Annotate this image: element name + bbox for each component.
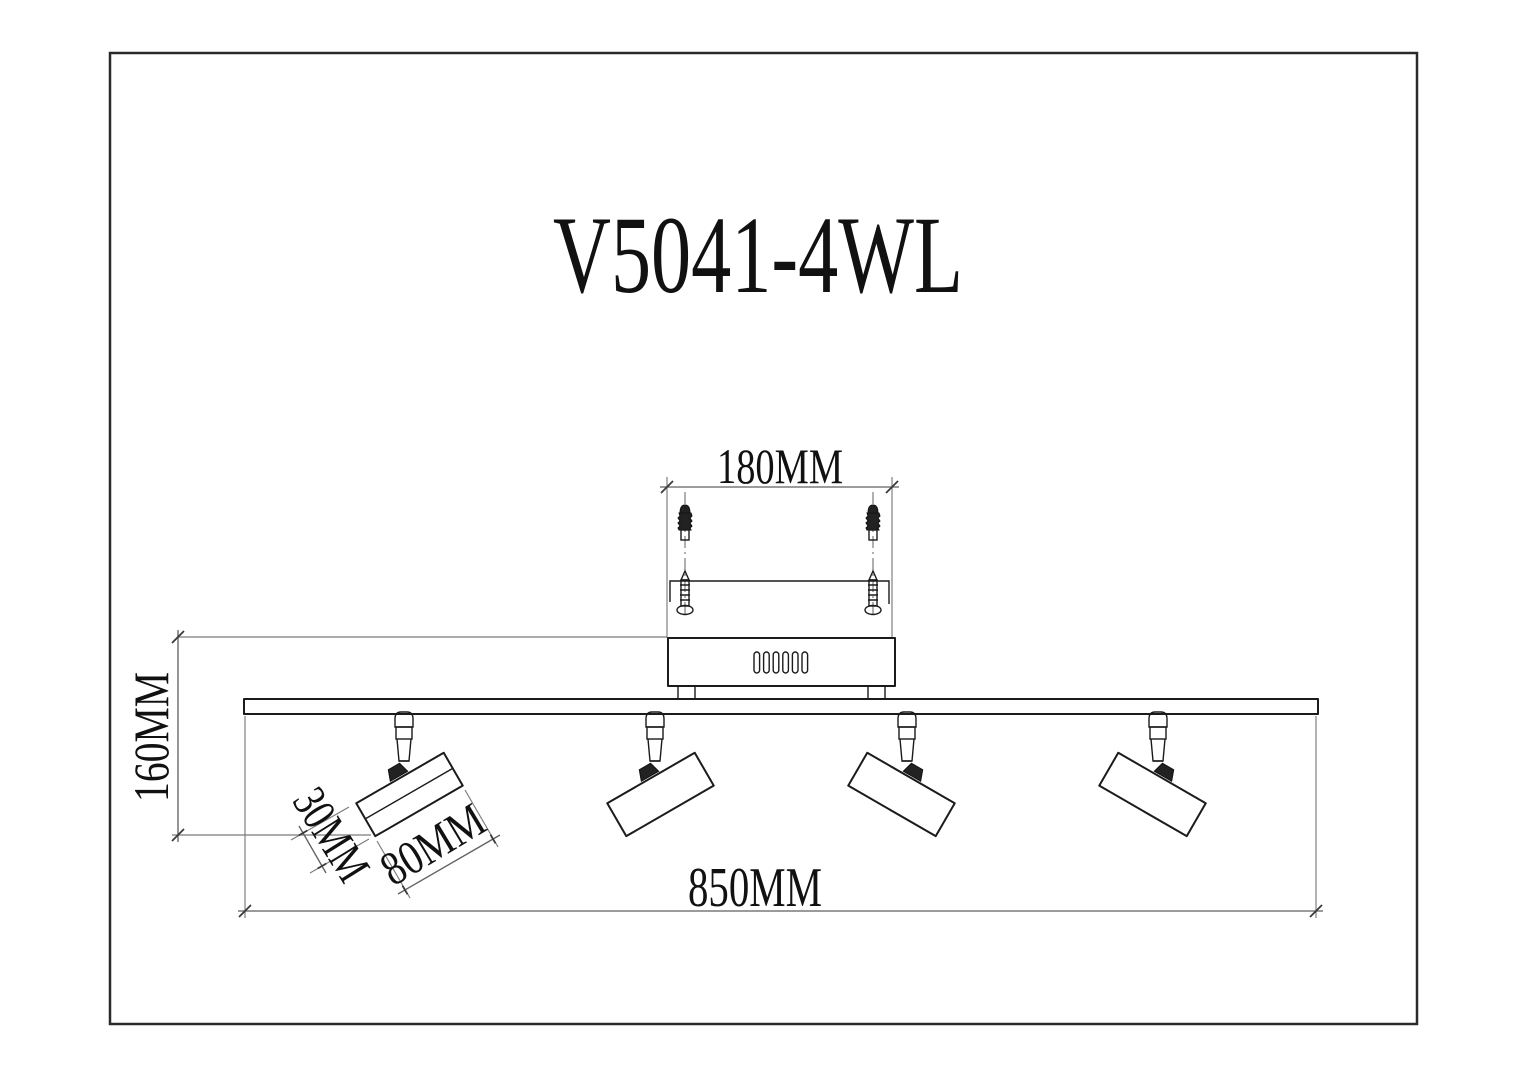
spotlight-head [607, 753, 713, 836]
dim-label-bar-length: 850MM [688, 857, 822, 919]
spotlight-joint [636, 762, 659, 782]
spotlight-head [848, 753, 954, 836]
spotlight-4 [1099, 712, 1212, 836]
mounting-bracket [670, 581, 889, 604]
wall-anchor-left [678, 505, 692, 540]
spotlight-joint [1154, 762, 1177, 782]
spotlight-head [1099, 753, 1205, 836]
spotlight-stem [646, 712, 664, 761]
spotlight-2 [601, 712, 714, 836]
dimension-fixture-height: 160MM [123, 630, 667, 842]
spotlight-3 [848, 712, 961, 836]
drawing-page: V5041-4WL 180MM [0, 0, 1529, 1080]
spotlight-stem [1149, 712, 1167, 761]
wall-anchor-right [866, 505, 880, 540]
dimension-mounting-width: 180MM [660, 438, 899, 638]
spotlight-joint [385, 762, 408, 782]
technical-drawing: V5041-4WL 180MM [0, 0, 1529, 1080]
dim-label-fixture-height: 160MM [123, 672, 179, 802]
canopy-box [668, 638, 895, 686]
canopy-vents [754, 652, 808, 673]
spotlight-stem [898, 712, 916, 761]
drawing-title: V5041-4WL [553, 194, 963, 316]
dimension-head-length: 80MM [371, 790, 500, 898]
dim-label-mounting-width: 180MM [717, 438, 843, 494]
canopy [668, 638, 895, 699]
spotlight-joint [903, 762, 926, 782]
canopy-foot-left [678, 686, 695, 699]
dim-label-head-length: 80MM [371, 793, 494, 896]
canopy-foot-right [868, 686, 885, 699]
spotlight-stem [395, 712, 413, 761]
